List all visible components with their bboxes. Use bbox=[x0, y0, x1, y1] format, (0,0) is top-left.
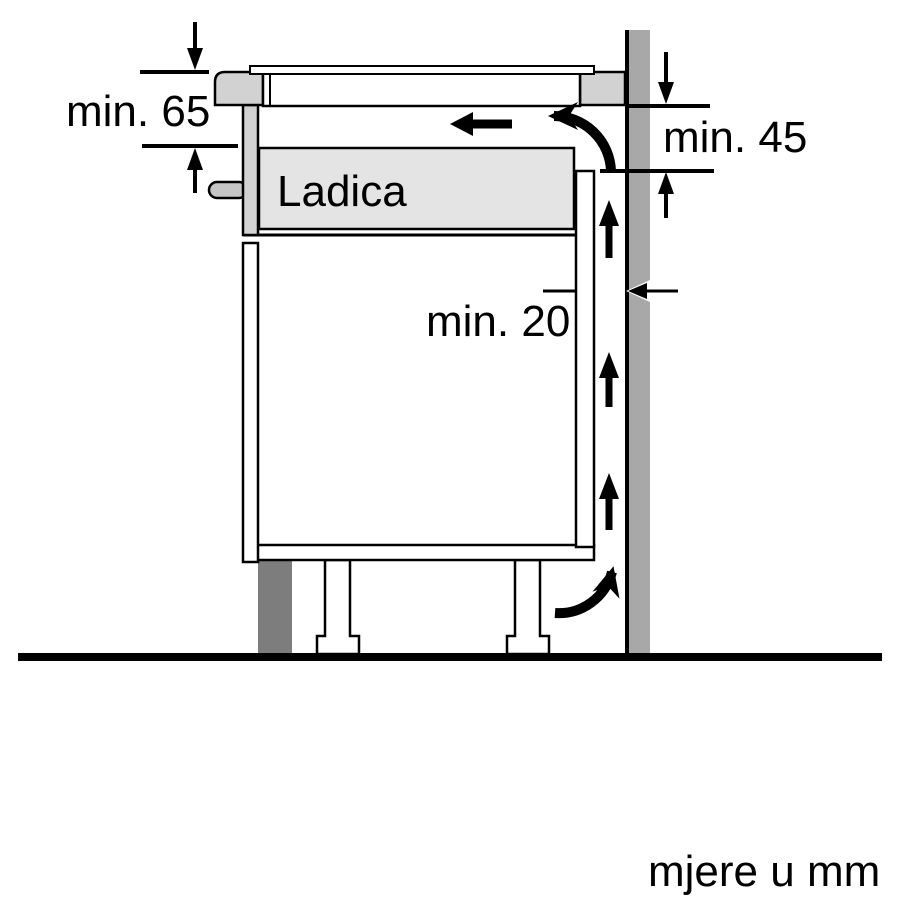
cabinet-front-panel bbox=[243, 243, 258, 562]
installation-diagram: min. 65 min. 45 min. 20 Ladica mjere u m… bbox=[0, 0, 900, 900]
arrow-up-icon bbox=[187, 148, 203, 170]
dimension-label-min-65: min. 65 bbox=[66, 90, 210, 134]
wall-front-edge bbox=[625, 30, 629, 655]
arrow-up-icon bbox=[658, 172, 674, 194]
hob-glass-top bbox=[250, 66, 594, 74]
wall-icon bbox=[629, 30, 650, 655]
airflow-up-arrow-icon bbox=[599, 473, 619, 530]
worktop-front-section bbox=[215, 72, 263, 105]
cabinet-leg-back bbox=[507, 560, 549, 654]
drawer-front-panel bbox=[243, 105, 258, 235]
airflow-up-arrow-icon bbox=[599, 352, 619, 407]
airflow-curve-bottom-icon bbox=[555, 572, 612, 613]
drawer-label: Ladica bbox=[277, 170, 407, 214]
dimension-label-min-20: min. 20 bbox=[426, 300, 570, 344]
drawer-handle bbox=[209, 182, 247, 198]
airflow-left-arrow-icon bbox=[450, 112, 512, 136]
cabinet-back-panel bbox=[576, 171, 594, 547]
worktop-back-section bbox=[580, 72, 625, 105]
arrow-down-icon bbox=[187, 48, 203, 70]
dimension-label-min-45: min. 45 bbox=[663, 116, 807, 160]
units-note: mjere u mm bbox=[648, 850, 880, 894]
floor-line bbox=[18, 653, 882, 661]
cabinet-bottom-panel bbox=[257, 545, 594, 560]
cabinet-leg-front bbox=[317, 560, 359, 654]
airflow-up-arrow-icon bbox=[599, 200, 619, 258]
hob-body bbox=[263, 73, 580, 106]
plinth-panel bbox=[258, 561, 292, 654]
arrow-down-icon bbox=[658, 82, 674, 104]
